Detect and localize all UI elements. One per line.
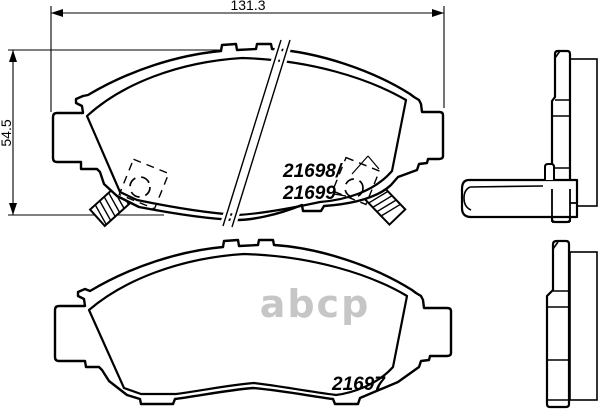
arrow-up-icon <box>9 50 17 62</box>
upper-pad-side-view <box>462 51 597 222</box>
arrow-down-icon <box>9 203 17 215</box>
lower-pad-front-view <box>55 240 451 404</box>
lower-friction-strip <box>547 241 569 407</box>
height-dimension-value: 54.5 <box>0 119 14 146</box>
width-dimension-value: 131.3 <box>230 0 265 13</box>
part-number-upper-line2: 21699 <box>282 183 336 204</box>
lower-pad-side-view <box>547 241 597 407</box>
arrow-left-icon <box>51 9 63 17</box>
brake-pad-technical-drawing: 131.3 54.5 21698/ <box>0 0 600 410</box>
arrow-right-icon <box>432 9 444 17</box>
lower-pad-outline <box>55 240 451 404</box>
part-number-upper-line1: 21698/ <box>282 161 343 182</box>
lower-backplate-edge <box>570 252 597 400</box>
part-number-lower: 21697 <box>331 374 386 395</box>
drawing-canvas: 131.3 54.5 21698/ <box>0 0 600 410</box>
watermark-text: abcp <box>260 282 371 326</box>
sensor-arm-hook <box>545 164 554 180</box>
